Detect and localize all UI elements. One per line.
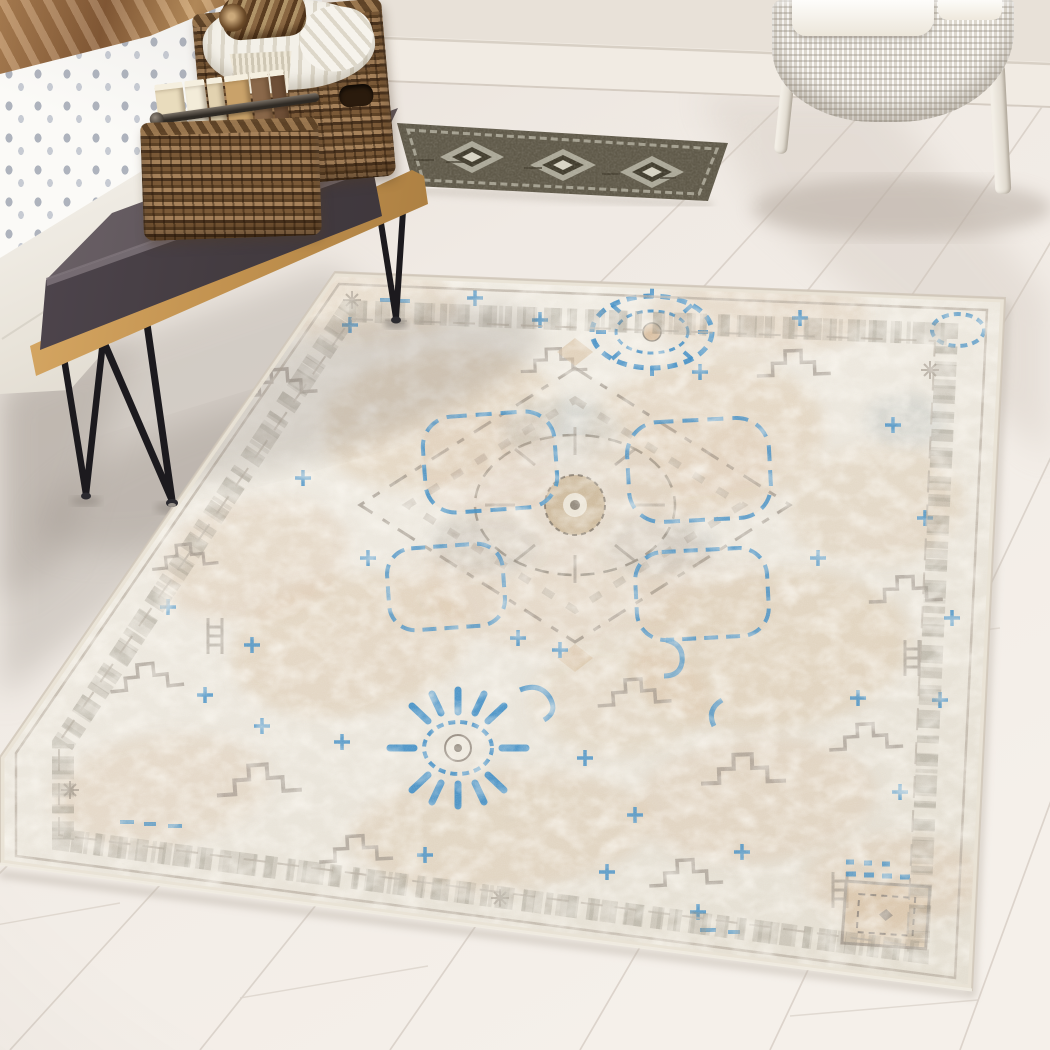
basket-handle-hole — [338, 83, 374, 108]
chair-cushion-side — [938, 0, 1002, 20]
chair-cushion — [792, 0, 934, 36]
small-wicker-basket — [140, 117, 322, 241]
hairpin-leg-front-left — [100, 317, 172, 500]
wicker-armchair — [770, 0, 1018, 200]
bedroom-rug-photo — [0, 0, 1050, 1050]
